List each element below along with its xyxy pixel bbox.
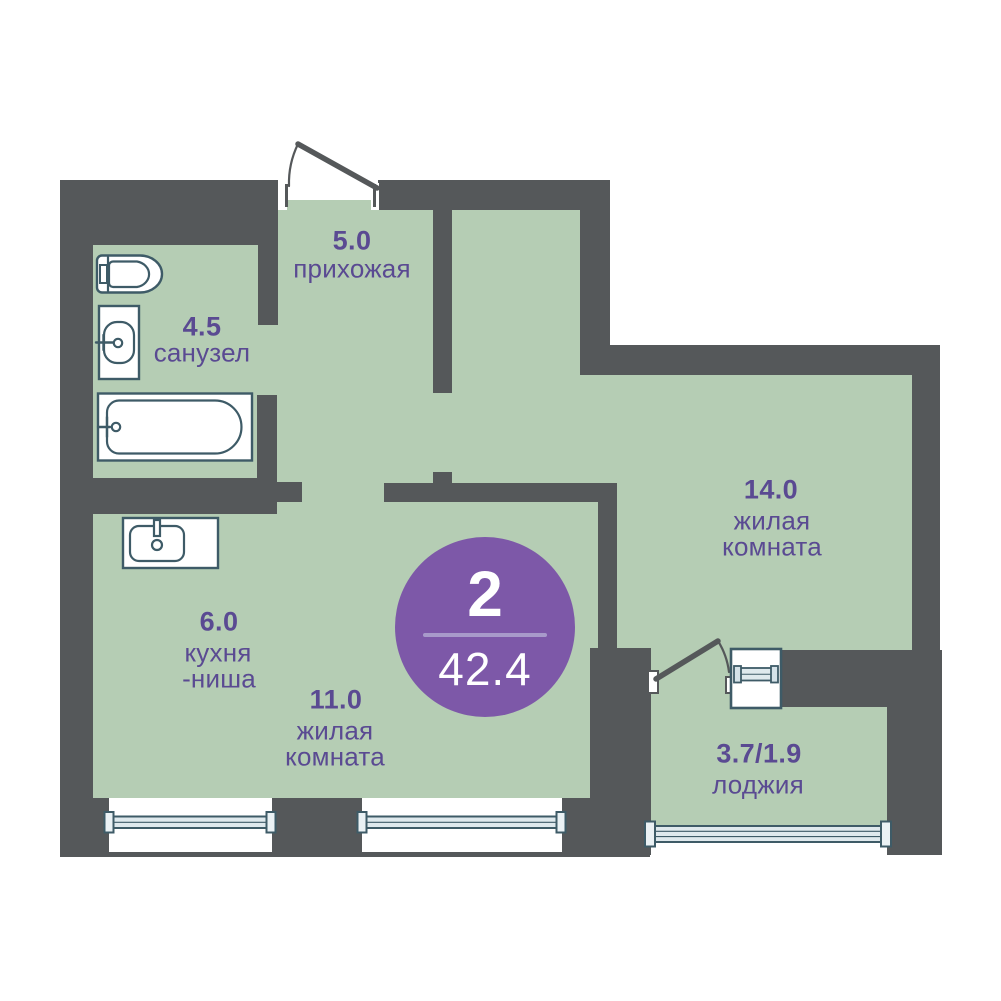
wall-living1-right bbox=[912, 345, 940, 650]
wall-loggia-right bbox=[887, 650, 942, 855]
wall-living2-right bbox=[598, 502, 617, 650]
wall-hall-divider bbox=[433, 182, 452, 393]
label-living1-area: 14.0 bbox=[744, 475, 798, 506]
window-opening-kitchen bbox=[109, 798, 272, 852]
badge-rooms-count: 2 bbox=[467, 562, 503, 626]
label-kitchen-area: 6.0 bbox=[200, 607, 239, 638]
label-hallway-area: 5.0 bbox=[333, 226, 372, 257]
label-kitchen-name-2: -ниша bbox=[182, 664, 256, 695]
badge-total-area: 42.4 bbox=[438, 646, 532, 692]
wall-niche-right bbox=[580, 182, 610, 345]
label-living2-area: 11.0 bbox=[310, 685, 363, 716]
wall-hall-bottom bbox=[384, 483, 617, 502]
floor-plan: 5.0 прихожая 4.5 санузел 14.0 жилая комн… bbox=[0, 0, 1001, 1001]
label-loggia-name: лоджия bbox=[712, 770, 804, 801]
wall-living1-top bbox=[580, 345, 940, 375]
wall-kitchen-top bbox=[60, 478, 258, 514]
label-loggia-area: 3.7/1.9 bbox=[716, 739, 801, 770]
wall-hall-bottom-stub bbox=[433, 472, 452, 484]
label-living2-name-2: комната bbox=[285, 742, 385, 773]
badge-divider bbox=[423, 633, 547, 637]
label-living1-name-2: комната bbox=[722, 532, 822, 563]
window-opening-living2 bbox=[362, 798, 562, 852]
label-hallway-name: прихожая bbox=[293, 254, 410, 285]
wall-kitchen-top-step bbox=[276, 482, 302, 502]
label-bathroom-name: санузел bbox=[154, 338, 251, 369]
wall-bathroom-right-lower bbox=[257, 395, 277, 514]
wall-bathroom-right-upper bbox=[258, 182, 278, 325]
wall-balcony-right bbox=[780, 650, 887, 707]
wall-top-right bbox=[378, 180, 610, 210]
apartment-badge: 2 42.4 bbox=[395, 537, 575, 717]
wall-left bbox=[60, 180, 93, 857]
